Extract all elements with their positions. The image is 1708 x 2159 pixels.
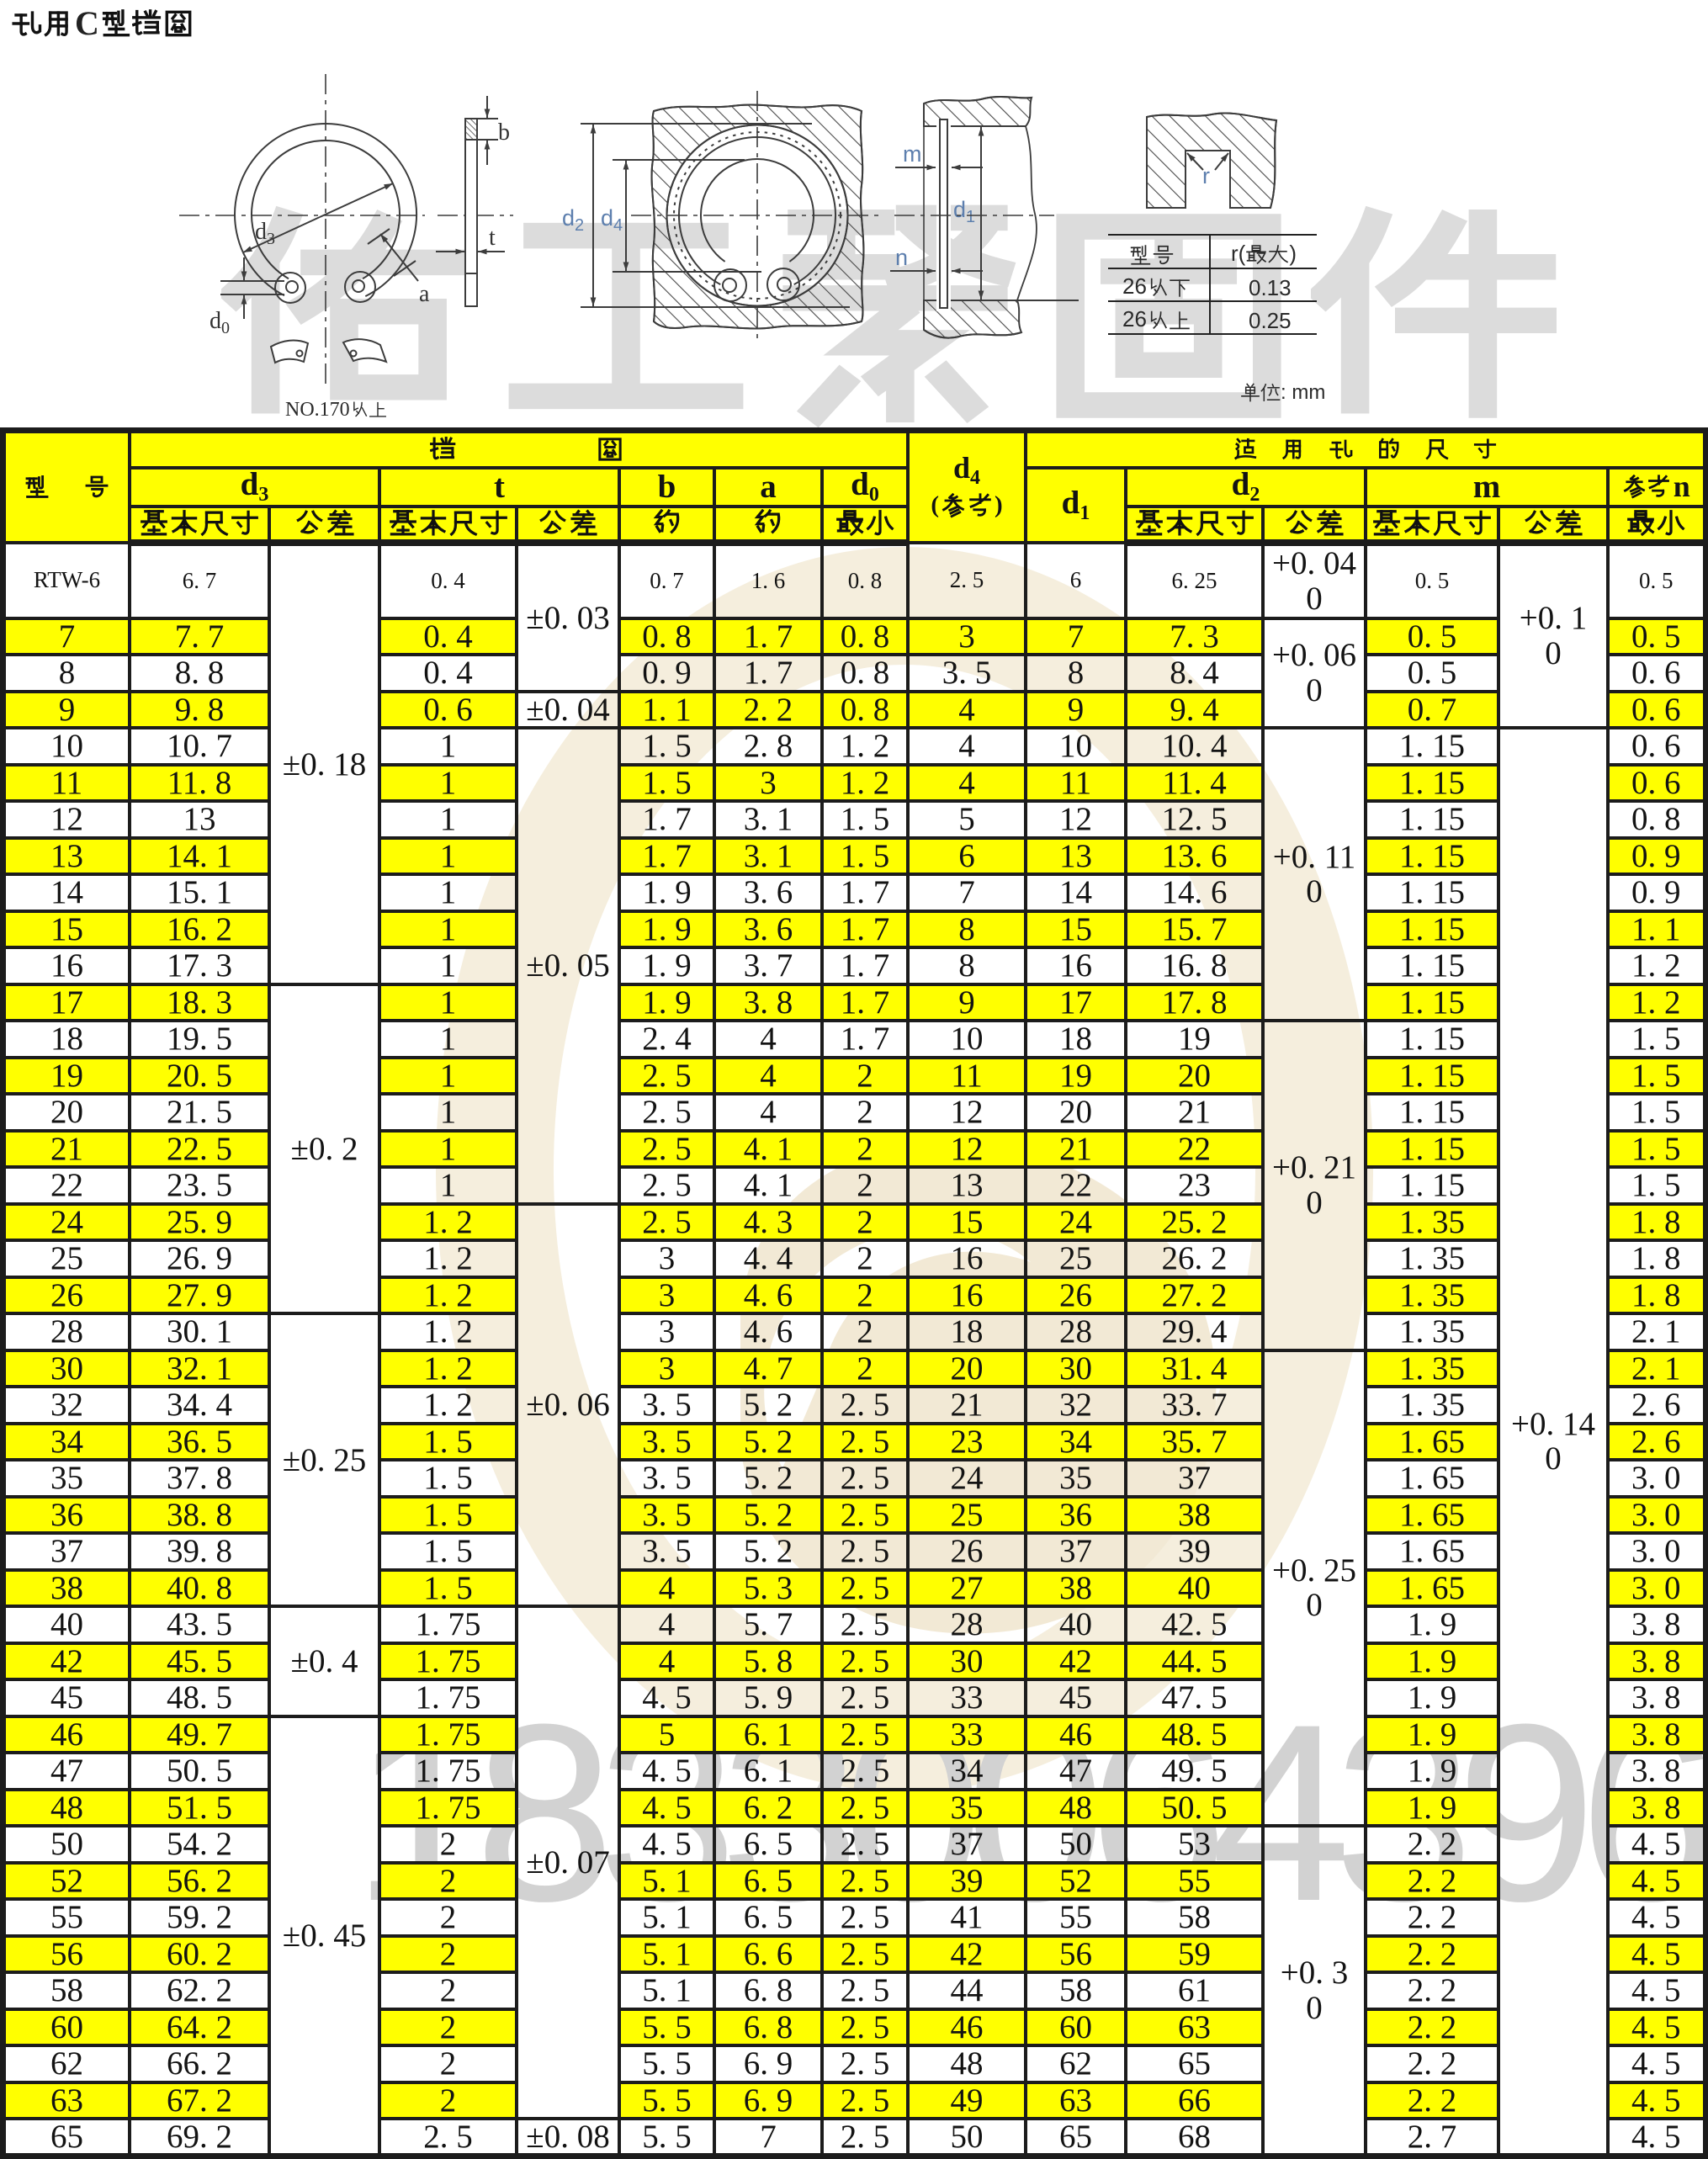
svg-text:b: b [498, 119, 510, 146]
svg-text:d2: d2 [562, 205, 584, 235]
svg-text:d1: d1 [953, 197, 975, 226]
svg-text:d0: d0 [210, 308, 230, 337]
svg-text:a: a [419, 281, 430, 307]
svg-text:n: n [895, 245, 908, 270]
svg-text:d3: d3 [255, 219, 275, 248]
svg-text:d4: d4 [601, 205, 623, 235]
svg-text:m: m [903, 141, 922, 167]
svg-text:t: t [489, 225, 496, 251]
svg-text:r: r [1202, 163, 1210, 188]
